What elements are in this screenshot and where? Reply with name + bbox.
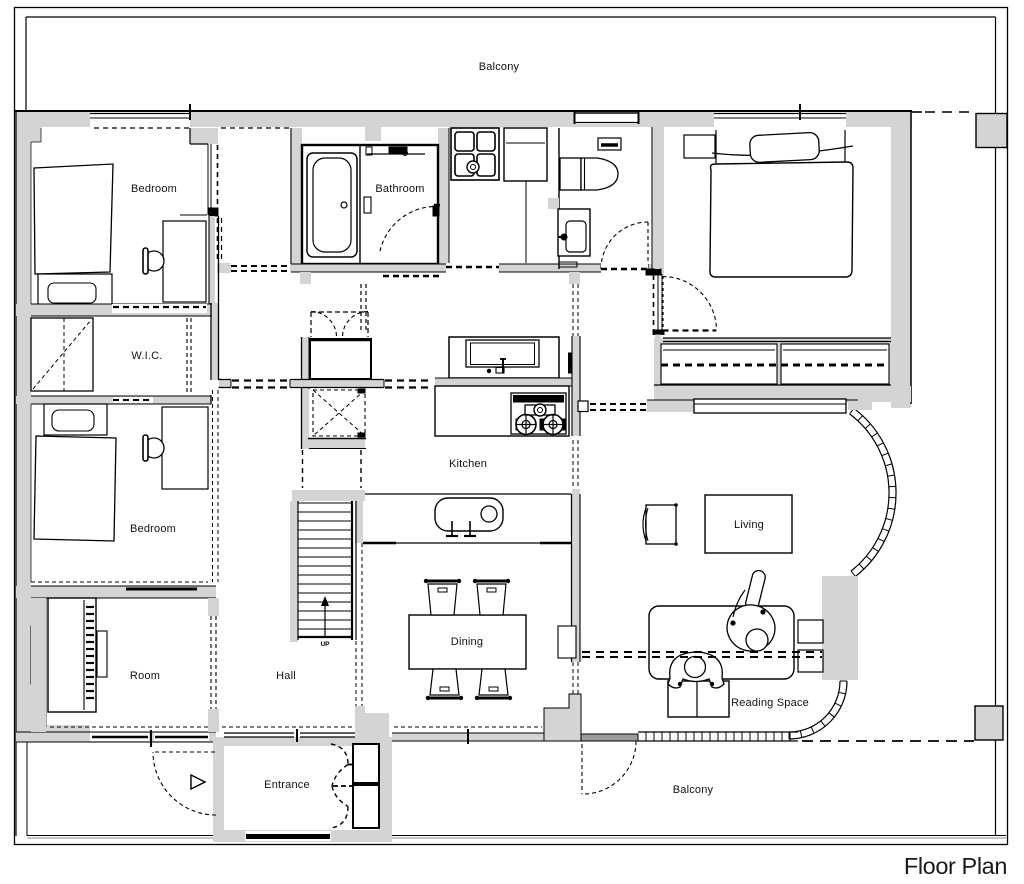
svg-text:Balcony: Balcony [479,61,520,73]
svg-text:Dining: Dining [451,636,483,648]
svg-text:Floor Plan: Floor Plan [904,853,1007,879]
svg-text:Bedroom: Bedroom [131,183,177,195]
svg-text:Reading Space: Reading Space [731,697,809,709]
svg-text:UP: UP [320,641,330,648]
svg-text:Kitchen: Kitchen [449,458,487,470]
svg-text:Living: Living [734,519,764,531]
svg-text:Room: Room [130,670,160,682]
svg-text:Bedroom: Bedroom [130,523,176,535]
svg-text:Bathroom: Bathroom [375,183,424,195]
svg-text:Hall: Hall [276,670,296,682]
svg-text:Entrance: Entrance [264,779,310,791]
svg-text:W.I.C.: W.I.C. [131,350,162,362]
svg-text:Balcony: Balcony [673,784,714,796]
